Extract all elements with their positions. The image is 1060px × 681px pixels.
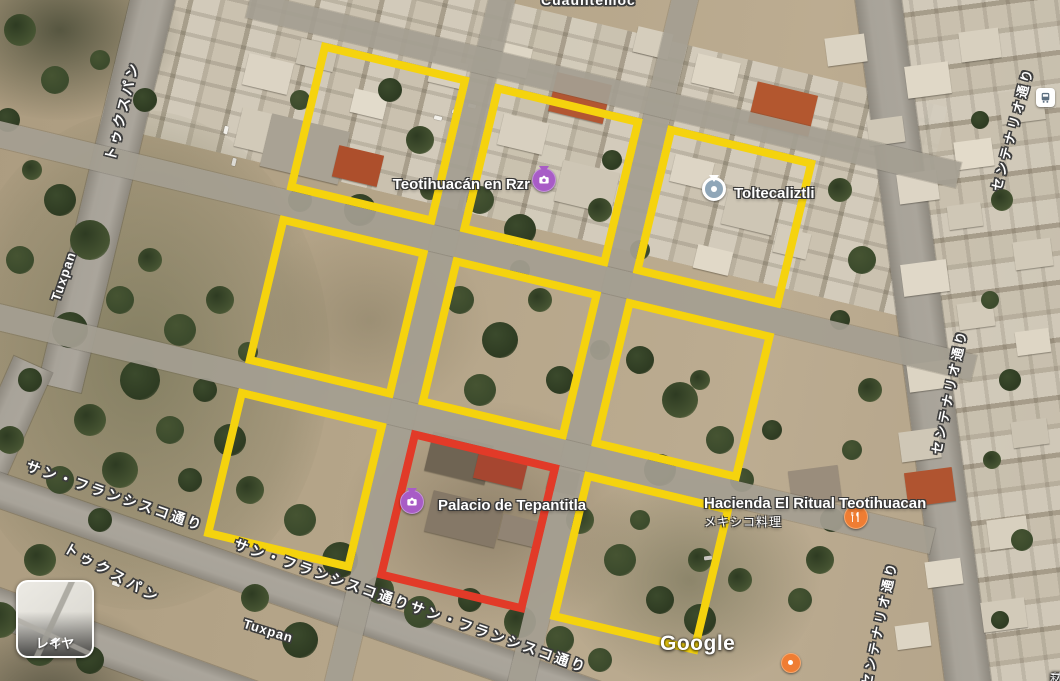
tree <box>156 416 184 444</box>
tree <box>6 246 34 274</box>
tree <box>164 314 196 346</box>
tree <box>24 544 56 576</box>
tree <box>206 286 234 314</box>
poi-name: Hacienda El Ritual Teotihuacan <box>704 495 926 512</box>
tree <box>981 291 999 309</box>
layers-label: レイヤ <box>36 633 75 652</box>
privacy-link[interactable]: プライバシー <box>1050 670 1060 681</box>
building <box>824 34 867 67</box>
tree <box>588 648 612 672</box>
tree <box>828 178 852 202</box>
street-label-clipped: Cuauhtémoc <box>541 0 636 8</box>
poi-category-label: メキシコ料理 <box>704 514 782 530</box>
tree <box>106 286 134 314</box>
map-canvas[interactable]: トゥクスパン Tuxpan サン・フランシスコ通り トゥクスパン サン・フランシ… <box>0 0 1060 681</box>
tree <box>991 611 1009 629</box>
building <box>895 622 932 650</box>
building <box>924 558 963 588</box>
tree <box>41 66 69 94</box>
tree <box>22 160 42 180</box>
building <box>900 259 950 297</box>
tree <box>788 588 812 612</box>
tree <box>983 451 1001 469</box>
tree <box>971 111 989 129</box>
poi-label-teotihuacan-en-rzr[interactable]: Teotihuacán en Rzr <box>392 176 530 193</box>
google-logo[interactable]: Google <box>660 632 735 656</box>
building <box>947 202 984 230</box>
poi-label-palacio-de-tepantitla[interactable]: Palacio de Tepantitla <box>438 497 586 514</box>
tree <box>1011 529 1033 551</box>
tree <box>858 378 882 402</box>
street-label: Tuxpan <box>242 616 295 645</box>
tree <box>88 508 112 532</box>
building <box>1012 238 1053 271</box>
tree <box>18 368 42 392</box>
tree <box>74 404 106 436</box>
tree <box>999 369 1021 391</box>
building <box>1010 418 1049 448</box>
bus-stop-icon[interactable] <box>1036 88 1055 107</box>
building <box>1015 328 1052 356</box>
street-label: センテナリオ通り <box>856 559 901 681</box>
tree <box>44 184 76 216</box>
tree <box>241 584 269 612</box>
building <box>904 61 952 98</box>
tree <box>178 468 202 492</box>
poi-label-toltecaliztli[interactable]: Toltecaliztli <box>734 185 815 202</box>
tree <box>842 440 862 460</box>
tree <box>138 248 162 272</box>
tree <box>848 246 876 274</box>
poi-pin-partial[interactable] <box>781 653 801 673</box>
tree <box>90 50 110 70</box>
tree <box>762 420 782 440</box>
building <box>958 28 1002 63</box>
layers-button[interactable]: レイヤ <box>16 580 94 658</box>
tree <box>728 568 752 592</box>
poi-label-hacienda-el-ritual[interactable]: Hacienda El Ritual Teotihuacan メキシコ料理 <box>704 496 838 512</box>
tree <box>806 546 834 574</box>
tree <box>4 14 36 46</box>
